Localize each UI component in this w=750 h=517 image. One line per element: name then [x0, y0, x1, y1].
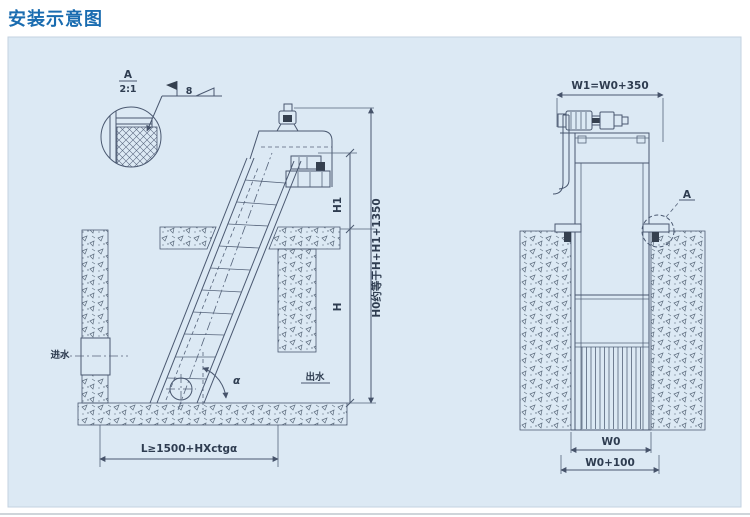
- weld-size-label: 8: [186, 86, 193, 97]
- inlet-label: 进水: [50, 349, 70, 361]
- anchor-right: [652, 232, 659, 242]
- right-ground: [651, 231, 705, 430]
- detail-ref-label: A: [683, 189, 692, 201]
- deck-left: [160, 227, 216, 249]
- dim-w0: W0: [602, 436, 621, 448]
- mount-plate-left: [555, 224, 581, 232]
- right-wall: [278, 249, 316, 352]
- dim-w1: W1=W0+350: [571, 80, 648, 92]
- deck-right: [269, 227, 340, 249]
- left-ground: [520, 231, 571, 430]
- left-wall-lower: [82, 375, 108, 403]
- detail-scale: 2:1: [119, 84, 136, 95]
- left-wall-upper: [82, 230, 108, 338]
- angle-label: α: [233, 375, 241, 387]
- dim-h1: H1: [332, 197, 344, 213]
- bottom-divider: [0, 513, 750, 515]
- drive-sprocket: [316, 162, 325, 171]
- anchor-left: [564, 232, 571, 242]
- mount-plate-right: [643, 224, 669, 232]
- dim-length: L≥1500+HXctgα: [141, 443, 237, 455]
- channel-floor: [78, 403, 347, 425]
- dim-w0-plus: W0+100: [585, 457, 635, 469]
- outlet-label: 出水: [305, 371, 325, 383]
- inlet-opening: [81, 338, 110, 375]
- dim-h0: H0约等于H+H1+1350: [370, 198, 383, 317]
- dim-h: H: [332, 303, 344, 312]
- installation-diagram-svg: A 2:1 8: [0, 0, 750, 517]
- detail-label: A: [124, 69, 133, 81]
